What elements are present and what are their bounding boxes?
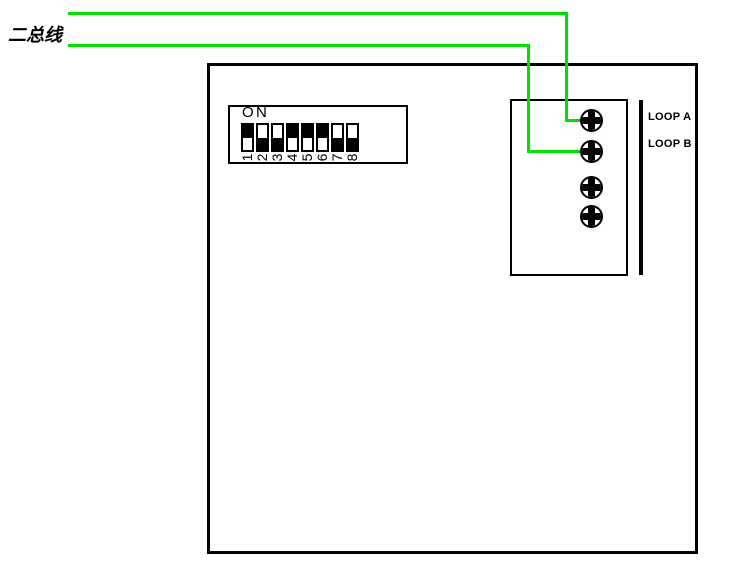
wiring-diagram-canvas: 二总线 O N LOOP A LOOP B 12345678	[0, 0, 730, 568]
screw-cross-vbar	[588, 205, 595, 228]
dip-switch-number-8: 8	[345, 150, 360, 165]
dip-switch-number-4: 4	[285, 150, 300, 165]
dip-on-label-n: N	[256, 106, 267, 120]
dip-switch-slider-8	[348, 138, 357, 151]
dip-switch-slider-3	[273, 138, 282, 151]
dip-switch-number-1: 1	[240, 150, 255, 165]
dip-switch-slider-5	[303, 125, 312, 138]
dip-switch-1	[241, 123, 254, 152]
terminal-screw-2	[580, 140, 603, 163]
dip-switch-number-5: 5	[300, 150, 315, 165]
dip-switch-5	[301, 123, 314, 152]
dip-switch-number-2: 2	[255, 150, 270, 165]
dip-switch-8	[346, 123, 359, 152]
dip-switch-number-6: 6	[315, 150, 330, 165]
dip-switch-6	[316, 123, 329, 152]
wire-a-vertical	[565, 12, 568, 122]
screw-cross-vbar	[588, 109, 595, 132]
wire-b-horizontal	[68, 44, 530, 47]
dip-switch-3	[271, 123, 284, 152]
loop-a-label: LOOP A	[648, 112, 691, 123]
terminal-separator-line	[639, 100, 643, 275]
bus-wire-label: 二总线	[8, 21, 62, 47]
screw-cross-vbar	[588, 140, 595, 163]
dip-switch-number-7: 7	[330, 150, 345, 165]
dip-switch-slider-7	[333, 138, 342, 151]
dip-switch-2	[256, 123, 269, 152]
dip-switch-slider-4	[288, 125, 297, 138]
dip-switch-slider-2	[258, 138, 267, 151]
screw-cross-vbar	[588, 176, 595, 199]
terminal-screw-4	[580, 205, 603, 228]
dip-switch-slider-1	[243, 125, 252, 138]
wire-b-vertical	[527, 44, 530, 153]
terminal-screw-1	[580, 109, 603, 132]
wire-a-horizontal	[68, 12, 568, 15]
dip-on-label-o: O	[242, 106, 254, 120]
wire-b-terminal-stub	[527, 150, 583, 153]
dip-switch-4	[286, 123, 299, 152]
loop-b-label: LOOP B	[648, 139, 692, 150]
terminal-screw-3	[580, 176, 603, 199]
dip-switch-7	[331, 123, 344, 152]
dip-switch-number-3: 3	[270, 150, 285, 165]
dip-switch-slider-6	[318, 125, 327, 138]
